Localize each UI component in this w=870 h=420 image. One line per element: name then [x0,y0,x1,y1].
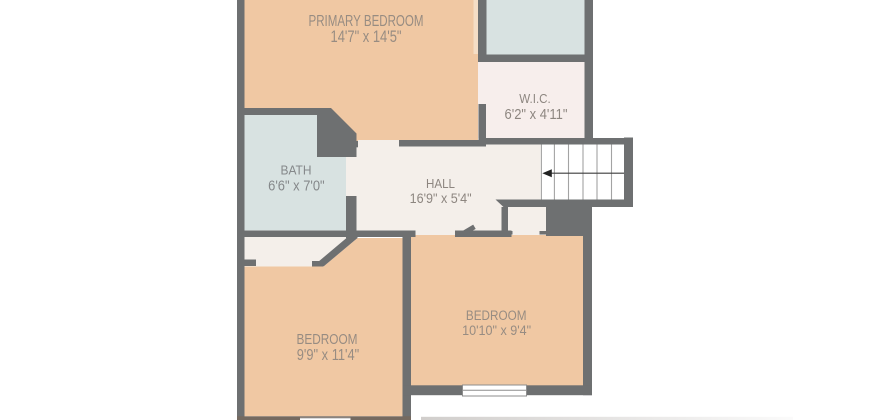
svg-text:14'7" x 14'5": 14'7" x 14'5" [331,28,402,46]
svg-text:BEDROOM: BEDROOM [297,331,358,348]
svg-text:10'10" x 9'4": 10'10" x 9'4" [462,322,531,338]
svg-text:6'6" x 7'0": 6'6" x 7'0" [268,179,325,195]
svg-text:16'9" x 5'4": 16'9" x 5'4" [410,190,472,206]
svg-text:9'9" x 11'4": 9'9" x 11'4" [297,347,360,364]
svg-text:6'2" x 4'11": 6'2" x 4'11" [505,107,568,123]
svg-text:BEDROOM: BEDROOM [466,308,527,323]
svg-text:W.I.C.: W.I.C. [519,91,551,106]
svg-text:BATH: BATH [281,163,312,178]
